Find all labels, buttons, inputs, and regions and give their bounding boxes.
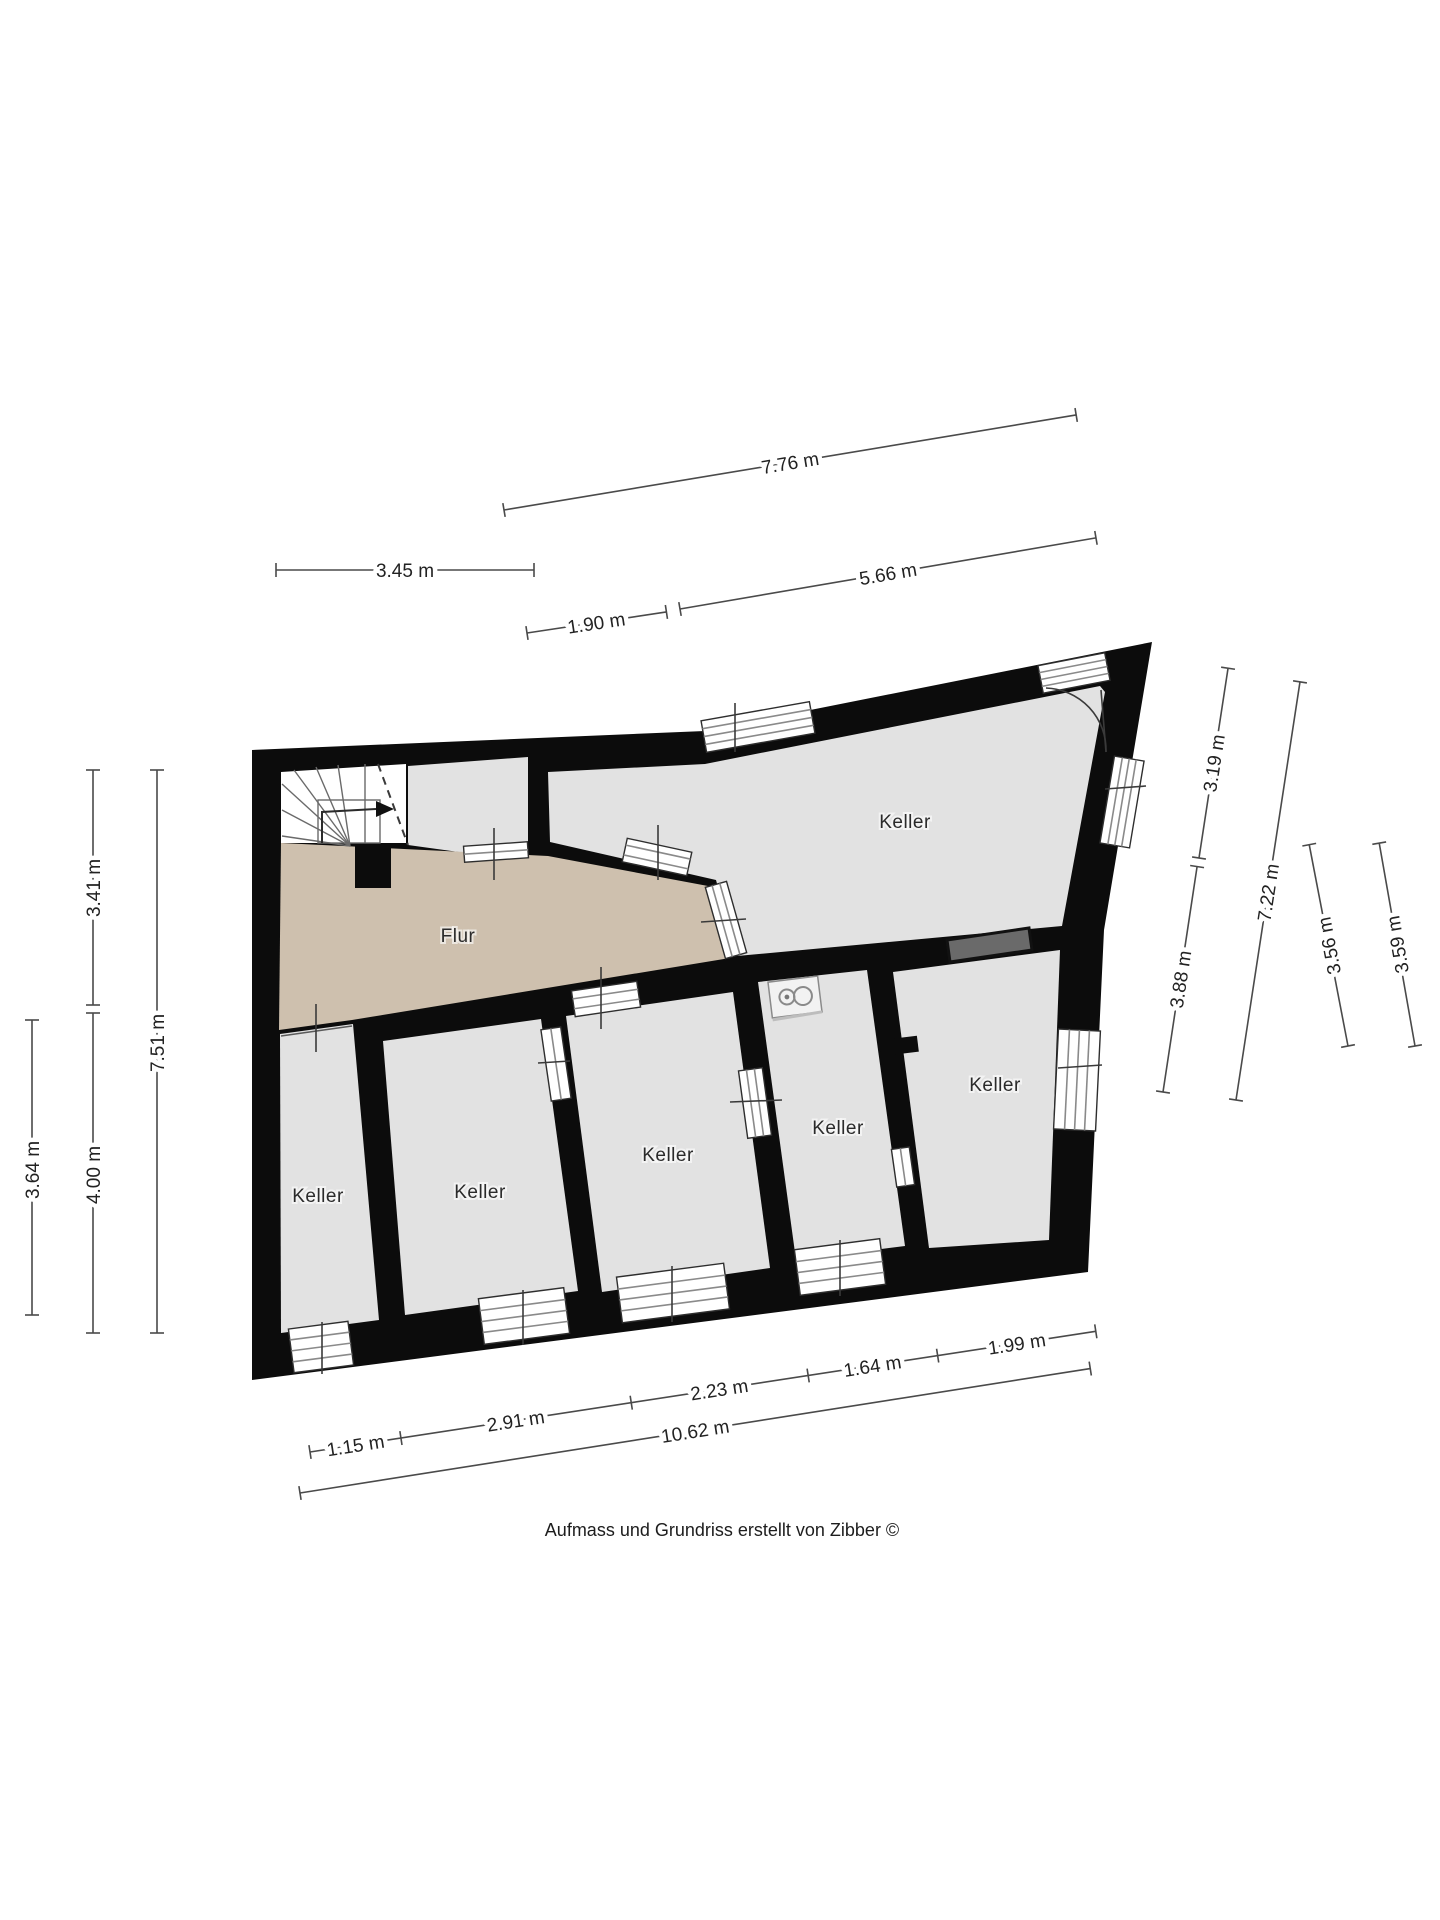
label-keller-second: Keller bbox=[454, 1182, 506, 1203]
dim-top-190: 1.90 m bbox=[526, 603, 669, 645]
label-keller-right: Keller bbox=[969, 1075, 1021, 1096]
svg-text:3.56 m: 3.56 m bbox=[1314, 915, 1346, 976]
dim-right-722: 7.22 m bbox=[1227, 681, 1312, 1102]
floor-plan-page: Flur Keller Keller Keller Keller Keller … bbox=[0, 0, 1440, 1920]
dim-right-388: 3.88 m bbox=[1154, 865, 1209, 1094]
dim-left-364: 3.64 m bbox=[23, 1020, 44, 1315]
label-flur: Flur bbox=[441, 926, 476, 947]
svg-text:1.99 m: 1.99 m bbox=[987, 1330, 1048, 1360]
wall-stub-stairs bbox=[355, 843, 391, 888]
washing-machine-icon bbox=[768, 976, 822, 1020]
dim-left-341: 3.41 m bbox=[84, 770, 105, 1005]
storage-nook bbox=[408, 757, 528, 853]
dim-left-400: 4.00 m bbox=[84, 1013, 105, 1333]
window-bottom-left bbox=[288, 1321, 353, 1372]
svg-text:4.00 m: 4.00 m bbox=[84, 1146, 105, 1204]
svg-text:3.19 m: 3.19 m bbox=[1200, 733, 1230, 794]
dim-bottom-total: 10.62 m bbox=[299, 1360, 1093, 1505]
dim-right-359: 3.59 m bbox=[1370, 841, 1426, 1048]
svg-text:3.45 m: 3.45 m bbox=[376, 561, 434, 582]
label-keller-main: Keller bbox=[879, 812, 931, 833]
label-keller-center: Keller bbox=[642, 1145, 694, 1166]
dim-top-345: 3.45 m bbox=[276, 561, 534, 582]
label-keller-boiler: Keller bbox=[812, 1118, 864, 1139]
floor-plan-canvas: Flur Keller Keller Keller Keller Keller … bbox=[0, 0, 1440, 1920]
dim-right-356: 3.56 m bbox=[1300, 842, 1359, 1047]
svg-text:2.23 m: 2.23 m bbox=[689, 1376, 750, 1406]
svg-text:2.91 m: 2.91 m bbox=[486, 1407, 547, 1437]
svg-text:3.88 m: 3.88 m bbox=[1167, 949, 1196, 1010]
dim-top-566: 5.66 m bbox=[678, 529, 1098, 621]
svg-text:3.41 m: 3.41 m bbox=[84, 859, 105, 917]
window-right-lower bbox=[1054, 1029, 1101, 1131]
svg-text:1.90 m: 1.90 m bbox=[566, 609, 627, 638]
svg-text:3.59 m: 3.59 m bbox=[1383, 914, 1414, 975]
svg-text:7.22 m: 7.22 m bbox=[1254, 862, 1284, 923]
dim-top-776: 7.76 m bbox=[503, 406, 1079, 522]
label-keller-left: Keller bbox=[292, 1186, 344, 1207]
svg-text:10.62 m: 10.62 m bbox=[660, 1417, 731, 1448]
svg-text:7.76 m: 7.76 m bbox=[760, 449, 821, 479]
svg-text:1.64 m: 1.64 m bbox=[842, 1352, 903, 1382]
dim-right-319: 3.19 m bbox=[1190, 667, 1240, 860]
svg-text:1.15 m: 1.15 m bbox=[325, 1432, 386, 1462]
svg-text:7.51 m: 7.51 m bbox=[148, 1014, 169, 1072]
svg-text:3.64 m: 3.64 m bbox=[23, 1141, 44, 1199]
caption: Aufmass und Grundriss erstellt von Zibbe… bbox=[545, 1520, 899, 1540]
svg-text:5.66 m: 5.66 m bbox=[858, 560, 919, 590]
dim-left-751: 7.51 m bbox=[148, 770, 169, 1333]
